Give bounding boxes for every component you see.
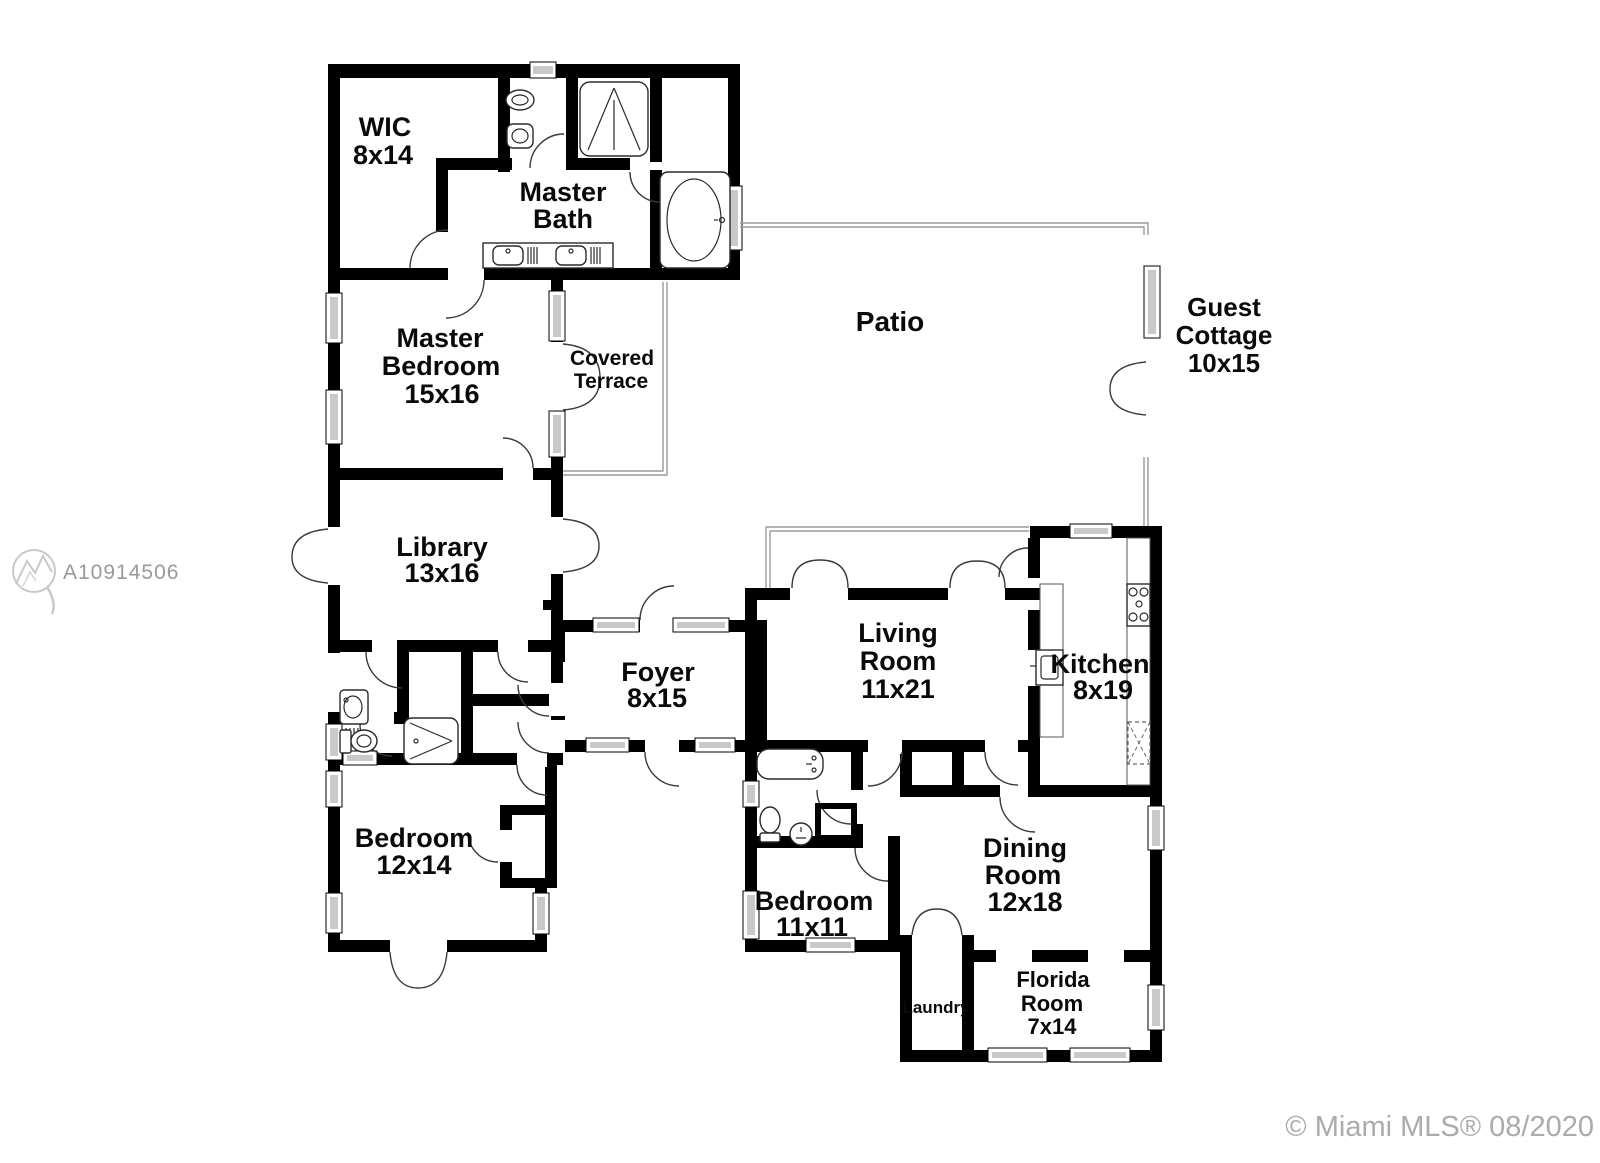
- watermark-listing-id: A10914506: [63, 561, 179, 584]
- label-living-room: Living: [858, 618, 938, 648]
- window: [549, 411, 565, 457]
- label-master-bath: Master: [519, 177, 607, 207]
- label-florida-room-dims: 7x14: [1028, 1014, 1078, 1039]
- floor-plan-page: WIC 8x14 Master Bath Master Bedroom 15x1…: [0, 0, 1600, 1163]
- window: [673, 618, 729, 632]
- floor-plan-canvas: WIC 8x14 Master Bath Master Bedroom 15x1…: [0, 0, 1600, 1163]
- sink-icon: [790, 823, 812, 845]
- bathtub-icon: [660, 172, 730, 268]
- label-laundry: Laundry: [902, 998, 970, 1017]
- label-guest-cottage-2: Cottage: [1176, 320, 1273, 350]
- window: [326, 293, 342, 343]
- window: [549, 291, 565, 341]
- shower-icon: [580, 82, 648, 156]
- label-covered-terrace-2: Terrace: [574, 370, 648, 393]
- label-dining-room: Dining: [983, 833, 1067, 863]
- toilet-icon: [506, 90, 534, 148]
- label-living-room-dims: 11x21: [861, 674, 935, 704]
- window: [1070, 524, 1112, 538]
- window: [695, 738, 735, 752]
- label-bedroom-11x11-dims: 11x11: [776, 912, 848, 942]
- bathtub-icon: [757, 749, 823, 779]
- label-dining-room-2: Room: [985, 860, 1062, 890]
- window: [533, 893, 549, 934]
- window: [326, 771, 342, 807]
- label-guest-cottage: Guest: [1187, 292, 1261, 322]
- label-guest-cottage-dims: 10x15: [1188, 348, 1260, 378]
- label-master-bedroom-dims: 15x16: [404, 379, 479, 409]
- window: [326, 390, 342, 444]
- window: [743, 781, 759, 807]
- label-florida-room: Florida: [1016, 967, 1090, 992]
- window: [586, 738, 629, 752]
- label-bedroom-12x14-dims: 12x14: [376, 850, 451, 880]
- toilet-icon: [340, 730, 377, 753]
- label-bedroom-12x14: Bedroom: [355, 823, 474, 853]
- window: [1148, 806, 1164, 850]
- double-vanity-icon: [483, 243, 613, 268]
- label-covered-terrace: Covered: [570, 347, 654, 370]
- toilet-icon: [760, 807, 780, 842]
- footer-copyright: © Miami MLS® 08/2020: [1285, 1111, 1594, 1143]
- window: [988, 1048, 1047, 1062]
- window: [530, 62, 556, 78]
- label-patio: Patio: [856, 306, 924, 337]
- label-kitchen-dims: 8x19: [1073, 675, 1133, 705]
- mls-watermark: A10914506: [13, 550, 179, 614]
- label-library-dims: 13x16: [404, 558, 479, 588]
- window: [1070, 1048, 1130, 1062]
- label-master-bedroom-2: Bedroom: [382, 351, 501, 381]
- label-dining-room-dims: 12x18: [987, 887, 1062, 917]
- label-foyer-dims: 8x15: [627, 683, 687, 713]
- window: [1144, 266, 1160, 338]
- stove-icon: [1127, 584, 1150, 626]
- window: [1148, 985, 1164, 1030]
- label-master-bath-2: Bath: [533, 204, 593, 234]
- label-wic-dims: 8x14: [353, 140, 413, 170]
- window: [326, 893, 342, 933]
- label-wic: WIC: [359, 112, 411, 142]
- label-florida-room-2: Room: [1021, 991, 1083, 1016]
- mls-logo-icon: [13, 550, 55, 614]
- label-master-bedroom: Master: [396, 323, 484, 353]
- shower-icon: [404, 718, 458, 764]
- label-living-room-2: Room: [860, 646, 937, 676]
- dishwasher-icon: [1128, 722, 1150, 764]
- window: [593, 618, 639, 632]
